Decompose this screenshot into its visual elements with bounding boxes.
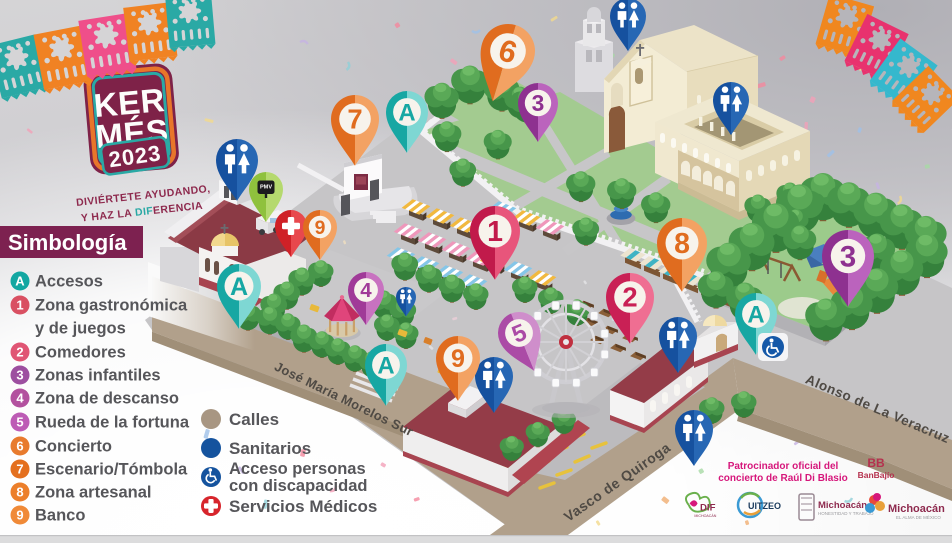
svg-text:3: 3 xyxy=(532,90,545,116)
svg-text:1: 1 xyxy=(16,298,23,313)
svg-text:A: A xyxy=(747,301,764,328)
svg-text:5: 5 xyxy=(16,415,23,430)
svg-text:3: 3 xyxy=(16,368,23,383)
svg-text:Zona gastronómica: Zona gastronómica xyxy=(35,297,188,315)
svg-text:BB: BB xyxy=(867,456,885,470)
svg-text:Sanitarios: Sanitarios xyxy=(229,439,311,458)
svg-text:Michoacán: Michoacán xyxy=(888,503,945,515)
svg-text:6: 6 xyxy=(16,439,23,454)
svg-text:9: 9 xyxy=(451,345,465,373)
svg-text:Zonas infantiles: Zonas infantiles xyxy=(35,367,161,385)
svg-text:A: A xyxy=(15,274,25,289)
svg-text:A: A xyxy=(230,273,248,301)
svg-text:4: 4 xyxy=(360,279,372,302)
svg-text:7: 7 xyxy=(347,104,362,135)
svg-text:A: A xyxy=(398,99,415,126)
svg-text:Zona artesanal: Zona artesanal xyxy=(35,484,151,502)
svg-text:4: 4 xyxy=(16,391,24,406)
svg-text:DIF: DIF xyxy=(700,503,716,514)
svg-text:UITZEO: UITZEO xyxy=(748,501,781,511)
svg-text:9: 9 xyxy=(16,508,23,523)
svg-text:Servicios Médicos: Servicios Médicos xyxy=(229,497,377,516)
svg-text:8: 8 xyxy=(16,485,23,500)
svg-text:HONESTIDAD Y TRABAJO: HONESTIDAD Y TRABAJO xyxy=(818,511,874,516)
svg-text:BanBajío: BanBajío xyxy=(858,470,895,480)
svg-text:2: 2 xyxy=(622,282,637,313)
svg-text:3: 3 xyxy=(840,240,856,273)
svg-text:Patrocinador oficial del: Patrocinador oficial del xyxy=(728,461,839,472)
svg-text:Concierto: Concierto xyxy=(35,438,112,456)
svg-text:A: A xyxy=(377,352,394,379)
svg-text:Accesos: Accesos xyxy=(35,273,103,291)
svg-text:1: 1 xyxy=(487,216,503,248)
svg-text:8: 8 xyxy=(674,228,690,260)
svg-text:9: 9 xyxy=(315,217,326,239)
svg-text:PMV: PMV xyxy=(260,185,272,191)
svg-text:con discapacidad: con discapacidad xyxy=(229,477,367,495)
svg-text:7: 7 xyxy=(16,462,23,477)
svg-text:2: 2 xyxy=(16,345,23,360)
svg-text:Acceso personas: Acceso personas xyxy=(229,460,366,478)
svg-text:Escenario/Tómbola: Escenario/Tómbola xyxy=(35,461,188,479)
svg-text:Rueda de la fortuna: Rueda de la fortuna xyxy=(35,414,190,432)
svg-text:concierto de Raúl Di Blasio: concierto de Raúl Di Blasio xyxy=(718,473,847,484)
svg-text:Michoacán: Michoacán xyxy=(818,500,867,511)
svg-text:Comedores: Comedores xyxy=(35,344,126,362)
svg-text:Simbología: Simbología xyxy=(8,230,127,255)
svg-text:y de juegos: y de juegos xyxy=(35,320,126,338)
svg-text:EL ALMA DE MÉXICO: EL ALMA DE MÉXICO xyxy=(896,514,941,520)
svg-text:MICHOACÁN: MICHOACÁN xyxy=(694,514,716,518)
svg-text:Banco: Banco xyxy=(35,507,85,525)
svg-text:Zona de descanso: Zona de descanso xyxy=(35,390,179,408)
svg-text:Calles: Calles xyxy=(229,410,279,429)
